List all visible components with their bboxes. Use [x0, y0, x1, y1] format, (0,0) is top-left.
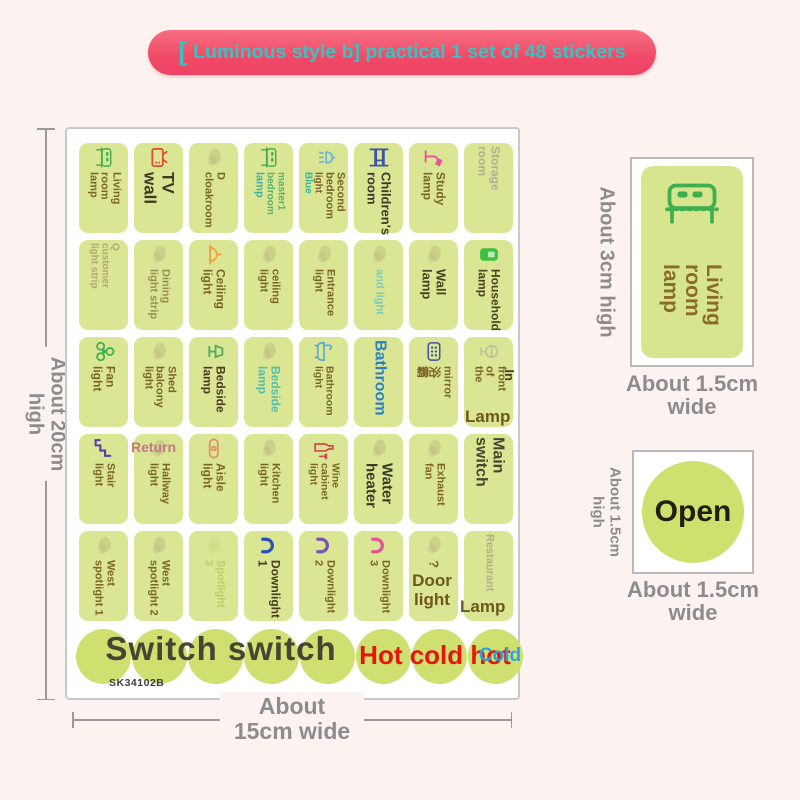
- sticker-cell: Bathroomlight: [299, 337, 348, 427]
- sticker-label-line: light strip: [88, 243, 98, 289]
- detail-width-label: About 1.5cm wide: [622, 372, 762, 418]
- product-banner: [ Luminous style b] practical 1 set of 4…: [148, 30, 656, 75]
- sticker-label-line: 1: [256, 560, 268, 618]
- sticker-label-line: bedroom: [322, 172, 333, 219]
- overlay-cold-label: Cold: [471, 647, 529, 665]
- sticker-label: Householdlamp: [476, 269, 501, 331]
- sticker-label-line: Wine: [329, 463, 340, 500]
- sticker-label-line: Bedside: [269, 366, 281, 413]
- circle-width-label: About 1.5cm wide: [614, 578, 772, 624]
- desklamp-icon: [422, 146, 445, 169]
- faded-icon: [257, 340, 280, 363]
- sticker-label: Downlight2: [312, 560, 335, 613]
- faded-icon: [202, 146, 225, 169]
- sticker-content: and light: [354, 240, 403, 330]
- sticker-label-line: lamp: [252, 172, 263, 215]
- detail-sticker-label: Livingroomlamp: [656, 264, 728, 358]
- sticker-label-line: room: [98, 172, 109, 204]
- banner-text: Luminous style b] practical 1 set of 48 …: [193, 41, 625, 64]
- faded-icon: [92, 534, 115, 557]
- aisle-icon: [202, 437, 225, 460]
- sticker-label-line: Dining: [159, 269, 170, 319]
- width-dimension-label: About 15cm wide: [220, 692, 364, 746]
- sticker-label-line: and light: [373, 269, 384, 315]
- heater-icon: [422, 340, 445, 363]
- sticker-cell: Downlight3: [354, 531, 403, 621]
- sticker-label-line: 2: [312, 560, 323, 613]
- sticker-label-line: lamp: [86, 172, 97, 204]
- faded-icon: [422, 437, 445, 460]
- sticker-label: Restaurant: [483, 534, 494, 591]
- sticker-content: Storageroom: [464, 143, 513, 233]
- bed-icon: [654, 178, 730, 228]
- sticker-content: master1bedroomlamp: [244, 143, 293, 233]
- sticker-content: Livingroomlamp: [79, 143, 128, 233]
- circle-height-text: About 1.5cm high: [590, 467, 623, 557]
- sticker-label-line: spotlight 1: [92, 560, 103, 616]
- tv-icon: [147, 146, 170, 169]
- sticker-label-line: D: [214, 172, 225, 228]
- sticker-content: TVwall: [134, 143, 183, 233]
- sticker-label-line: light: [257, 269, 268, 304]
- sticker-label: Storageroom: [476, 146, 501, 191]
- sticker-label-line: Hallway: [159, 463, 170, 504]
- sticker-label-line: Household: [489, 269, 501, 331]
- overlay-door-light: Door light: [403, 572, 461, 609]
- sticker-content: Westspotlight 2: [134, 531, 183, 621]
- sticker-cell: TVwall: [134, 143, 183, 233]
- sticker-label-line: West: [159, 560, 170, 616]
- sticker-label-line: heater: [363, 463, 379, 508]
- sticker-content: Kitchenlight: [244, 434, 293, 524]
- circle-width-line1: About 1.5cm: [614, 578, 772, 601]
- faded-icon: [202, 534, 225, 557]
- sticker-content: Entrancelight: [299, 240, 348, 330]
- sticker-label-line: light: [92, 463, 103, 487]
- sticker-label: Studylamp: [421, 172, 446, 205]
- sticker-cell: Livingroomlamp: [79, 143, 128, 233]
- sticker-content: Downlight1: [244, 531, 293, 621]
- bedside-icon: [202, 340, 225, 363]
- sticker-label: Entrancelight: [312, 269, 335, 316]
- sticker-label: ?: [427, 560, 441, 568]
- sticker-cell: Fanlight: [79, 337, 128, 427]
- sticker-sheet: Livingroomlamp TVwall Dcloakroom master1…: [65, 127, 520, 700]
- detail-width-line2: wide: [622, 395, 762, 418]
- circle-width-line2: wide: [614, 601, 772, 624]
- sticker-label: Dininglight strip: [147, 269, 170, 319]
- sticker-content: Qcustomerlight strip: [79, 240, 128, 330]
- sticker-label-line: Wall: [434, 269, 448, 299]
- faded-icon: [367, 243, 390, 266]
- sticker-content: Walllamp: [409, 240, 458, 330]
- sticker-label: Downlight3: [367, 560, 390, 613]
- sticker-content: Downlight2: [299, 531, 348, 621]
- sticker-label-line: 3: [202, 560, 213, 608]
- sticker-label: mirror浴霸: [415, 366, 451, 398]
- sticker-label: Kitchenlight: [257, 463, 280, 503]
- sticker-content: Fanlight: [79, 337, 128, 427]
- sticker-label-line: customer: [98, 243, 108, 289]
- sticker-label-line: lamp: [201, 366, 213, 413]
- sticker-content: mirror浴霸: [409, 337, 458, 427]
- faded-icon: [367, 437, 390, 460]
- sticker-label-line: Downlight: [379, 560, 390, 613]
- sticker-content: Children'sroom: [354, 143, 403, 233]
- sticker-label-line: switch: [472, 437, 489, 487]
- downlight-icon: [312, 534, 335, 557]
- width-label-line1: About: [234, 694, 350, 719]
- sticker-label-line: light: [201, 269, 213, 309]
- sticker-label-line: 3: [367, 560, 378, 613]
- sticker-label: Stairlight: [92, 463, 115, 487]
- bed-icon: [92, 146, 115, 169]
- sticker-label-line: mirror: [440, 366, 451, 398]
- circle-height-line2: high: [590, 467, 607, 557]
- sticker-label: Bathroom: [370, 340, 387, 416]
- sticker-cell: mirror浴霸: [409, 337, 458, 427]
- sticker-label-line: spotlight 2: [147, 560, 158, 616]
- sticker-label-line: Second: [334, 172, 345, 219]
- sticker-cell: Waterheater: [354, 434, 403, 524]
- sticker-label-line: light: [312, 269, 323, 316]
- sticker-label: Waterheater: [363, 463, 394, 508]
- sticker-label-line: light: [91, 366, 103, 391]
- bathtub-icon: [312, 340, 335, 363]
- sticker-label-line: lamp: [256, 366, 268, 413]
- sticker-label: frontofthe: [471, 366, 505, 391]
- sticker-label-line: cabinet: [318, 463, 329, 500]
- height-dimension: About 20cm high: [36, 128, 56, 700]
- sticker-label: Mainswitch: [472, 437, 505, 487]
- sticker-label-line: Kitchen: [269, 463, 280, 503]
- sticker-label-line: Downlight: [269, 560, 281, 618]
- sticker-label-line: light: [147, 463, 158, 504]
- overlay-return: Return: [131, 441, 176, 454]
- sticker-label: Qcustomerlight strip: [88, 243, 119, 289]
- sticker-content: Dcloakroom: [189, 143, 238, 233]
- faded-icon: [147, 340, 170, 363]
- sticker-label-line: Blue: [302, 172, 312, 219]
- downlight-icon: [257, 534, 280, 557]
- sticker-label: Fanlight: [91, 366, 116, 391]
- sticker-label-line: of: [483, 366, 494, 391]
- sticker-label-line: Spotlight: [214, 560, 225, 608]
- sticker-label-line: 霸: [415, 366, 427, 398]
- sticker-label: Bedsidelamp: [256, 366, 281, 413]
- dimension-cap: [37, 128, 55, 130]
- sticker-cell: Bedsidelamp: [189, 337, 238, 427]
- detail-sticker: Livingroomlamp: [641, 166, 743, 358]
- sticker-label-line: balcony: [153, 366, 164, 408]
- sticker-label: Westspotlight 2: [147, 560, 170, 616]
- sticker-cell: Exhaustfan: [409, 434, 458, 524]
- sticker-content: Westspotlight 1: [79, 531, 128, 621]
- sticker-content: Winecabinetlight: [299, 434, 348, 524]
- sticker-label-line: Living: [109, 172, 120, 204]
- sticker-label-line: light: [141, 366, 152, 408]
- sticker-cell: Children'sroom: [354, 143, 403, 233]
- bracket-icon: [: [178, 36, 187, 67]
- overlay-sheet-code: SK34102B: [109, 679, 164, 689]
- sticker-label-line: light: [201, 463, 213, 492]
- overlay-switch-label: Switch switch: [85, 633, 357, 664]
- sticker-label-line: light: [313, 366, 324, 416]
- sticker-label: Spotlight3: [202, 560, 225, 608]
- sticker-label-line: lamp: [660, 264, 682, 358]
- sticker-cell: Westspotlight 1: [79, 531, 128, 621]
- sticker-label-line: Children's: [379, 172, 393, 235]
- sticker-label-line: Main: [489, 437, 506, 487]
- sticker-label: Winecabinetlight: [307, 463, 340, 500]
- sticker-label-line: Exhaust: [434, 463, 445, 506]
- sticker-content: Bathroomlight: [299, 337, 348, 427]
- sticker-cell: Downlight1: [244, 531, 293, 621]
- sticker-content: Ceilinglight: [189, 240, 238, 330]
- sticker-label-line: Living: [703, 264, 725, 358]
- circle-height-label: About 1.5cm high: [584, 450, 628, 574]
- sticker-label: Exhaustfan: [422, 463, 445, 506]
- sticker-cell: Qcustomerlight strip: [79, 240, 128, 330]
- sticker-content: Householdlamp: [464, 240, 513, 330]
- sticker-cell: Downlight2: [299, 531, 348, 621]
- faded-icon: [147, 243, 170, 266]
- sticker-cell: Dcloakroom: [189, 143, 238, 233]
- sticker-content: Bedsidelamp: [189, 337, 238, 427]
- sticker-label-line: lamp: [476, 269, 488, 331]
- overlay-lamp-bottom: Lamp: [460, 599, 505, 615]
- faded-icon: [422, 534, 445, 557]
- sticker-content: Aislelight: [189, 434, 238, 524]
- sticker-label: and light: [373, 269, 384, 315]
- sticker-label-line: light: [257, 463, 268, 503]
- sticker-label: Shedbalconylight: [141, 366, 175, 408]
- sticker-label-line: the: [471, 366, 482, 391]
- sticker-cell: and light: [354, 240, 403, 330]
- sticker-label: master1bedroomlamp: [252, 172, 284, 215]
- width-dimension: About 15cm wide: [72, 712, 512, 728]
- sticker-content: Spotlight3: [189, 531, 238, 621]
- open-sticker: Open: [642, 461, 744, 563]
- sticker-cell: Studylamp: [409, 143, 458, 233]
- sticker-label-line: room: [681, 264, 703, 358]
- sticker-label: SecondbedroomlightBlue: [302, 172, 346, 219]
- sticker-label: Walllamp: [420, 269, 447, 299]
- sticker-label-line: lamp: [421, 172, 433, 205]
- sticker-label-line: Ceiling: [214, 269, 226, 309]
- sticker-label-line: light: [307, 463, 318, 500]
- sticker-label-line: lamp: [420, 269, 434, 299]
- dimension-cap: [72, 712, 74, 728]
- sticker-label: Children'sroom: [365, 172, 392, 235]
- sticker-label-line: wall: [141, 172, 159, 204]
- sticker-label-line: Bathroom: [324, 366, 335, 416]
- sticker-detail-large: Livingroomlamp: [630, 157, 754, 367]
- sticker-cell: Ceilinglight: [189, 240, 238, 330]
- sticker-label: Downlight1: [256, 560, 281, 618]
- sticker-content: Downlight3: [354, 531, 403, 621]
- sticker-label: Hallwaylight: [147, 463, 170, 504]
- sticker-content: Shedbalconylight: [134, 337, 183, 427]
- sticker-label-line: light strip: [147, 269, 158, 319]
- ceilinglamp-icon: [202, 243, 225, 266]
- sticker-cell: Entrancelight: [299, 240, 348, 330]
- sticker-label-line: ceiling: [269, 269, 280, 304]
- sticker-label-line: TV: [159, 172, 177, 204]
- bunkbed-icon: [367, 146, 390, 169]
- sticker-cell: Spotlight3: [189, 531, 238, 621]
- sticker-label-line: West: [104, 560, 115, 616]
- detail-width-line1: About 1.5cm: [622, 372, 762, 395]
- sticker-cell: Aislelight: [189, 434, 238, 524]
- sticker-label-line: room: [476, 146, 488, 191]
- sticker-label: TVwall: [141, 172, 176, 204]
- sticker-content: Bathroom: [354, 337, 403, 427]
- sticker-label-line: 浴: [428, 366, 440, 398]
- sticker-cell: Storageroom: [464, 143, 513, 233]
- overlay-in-margin: In: [503, 369, 515, 381]
- sticker-label: Bedsidelamp: [201, 366, 226, 413]
- sticker-label-line: light: [312, 172, 322, 219]
- sticker-label-line: Fan: [104, 366, 116, 391]
- sticker-label-line: Restaurant: [483, 534, 494, 591]
- sticker-label-line: Entrance: [324, 269, 335, 316]
- sticker-label: Westspotlight 1: [92, 560, 115, 616]
- sticker-label-line: Water: [379, 463, 395, 508]
- sticker-content: ceilinglight: [244, 240, 293, 330]
- sticker-content: SecondbedroomlightBlue: [299, 143, 348, 233]
- sticker-label: Livingroomlamp: [86, 172, 120, 204]
- sticker-label-line: Aisle: [214, 463, 226, 492]
- switch-icon: [477, 243, 500, 266]
- shower-icon: [312, 146, 335, 169]
- sticker-content: Studylamp: [409, 143, 458, 233]
- sticker-detail-circle: Open: [632, 450, 754, 574]
- sticker-cell: ceilinglight: [244, 240, 293, 330]
- sticker-cell: Bedsidelamp: [244, 337, 293, 427]
- faded-icon: [312, 243, 335, 266]
- detail-height-label: About 3cm high: [586, 157, 626, 367]
- faded-icon: [257, 437, 280, 460]
- width-label-line2: 15cm wide: [234, 719, 350, 744]
- detail-height-text: About 3cm high: [595, 186, 618, 337]
- dimension-cap: [511, 712, 513, 728]
- sticker-label: ceilinglight: [257, 269, 280, 304]
- sticker-label-line: Bathroom: [370, 340, 387, 416]
- bed-icon: [257, 146, 280, 169]
- sticker-cell: Kitchenlight: [244, 434, 293, 524]
- wine-icon: [312, 437, 335, 460]
- downlight-icon: [367, 534, 390, 557]
- sticker-label-line: room: [365, 172, 379, 235]
- sticker-content: Mainswitch: [464, 434, 513, 524]
- sticker-label: Ceilinglight: [201, 269, 226, 309]
- sticker-label-line: cloakroom: [202, 172, 213, 228]
- sticker-cell: Winecabinetlight: [299, 434, 348, 524]
- sticker-content: Exhaustfan: [409, 434, 458, 524]
- sticker-cell: Walllamp: [409, 240, 458, 330]
- faded-icon: [422, 243, 445, 266]
- sticker-cell: Bathroom: [354, 337, 403, 427]
- sticker-label-line: bedroom: [264, 172, 274, 215]
- sticker-label-line: Q: [109, 243, 119, 289]
- sticker-label: Bathroomlight: [313, 366, 335, 416]
- circle-height-line1: About 1.5cm: [606, 467, 623, 557]
- sticker-content: Dininglight strip: [134, 240, 183, 330]
- sticker-cell: Mainswitch: [464, 434, 513, 524]
- sticker-content: Stairlight: [79, 434, 128, 524]
- sticker-cell: Westspotlight 2: [134, 531, 183, 621]
- dimension-cap: [37, 699, 55, 701]
- sticker-cell: Householdlamp: [464, 240, 513, 330]
- sticker-cell: Dininglight strip: [134, 240, 183, 330]
- sticker-label-line: master1: [274, 172, 284, 215]
- sticker-label-line: Shed: [164, 366, 175, 408]
- fan-icon: [92, 340, 115, 363]
- sticker-cell: SecondbedroomlightBlue: [299, 143, 348, 233]
- sticker-cell: master1bedroomlamp: [244, 143, 293, 233]
- faded-icon: [147, 534, 170, 557]
- sticker-label-line: fan: [422, 463, 433, 506]
- sticker-label-line: Stair: [104, 463, 115, 487]
- sticker-label-line: Study: [434, 172, 446, 205]
- sticker-label-line: Bedside: [214, 366, 226, 413]
- height-label-line2: high: [24, 357, 46, 471]
- sticker-label: Aislelight: [201, 463, 226, 492]
- sticker-content: Bedsidelamp: [244, 337, 293, 427]
- sticker-content: Waterheater: [354, 434, 403, 524]
- globe-icon: [477, 340, 500, 363]
- sticker-label-line: Storage: [489, 146, 501, 191]
- overlay-lamp-mid: Lamp: [465, 409, 510, 425]
- faded-icon: [257, 243, 280, 266]
- sticker-cell: Shedbalconylight: [134, 337, 183, 427]
- sticker-label-line: ?: [427, 560, 441, 568]
- sticker-grid: Livingroomlamp TVwall Dcloakroom master1…: [79, 143, 513, 621]
- sticker-label-line: Downlight: [324, 560, 335, 613]
- sticker-cell: Stairlight: [79, 434, 128, 524]
- stairs-icon: [92, 437, 115, 460]
- sticker-label: Dcloakroom: [202, 172, 225, 228]
